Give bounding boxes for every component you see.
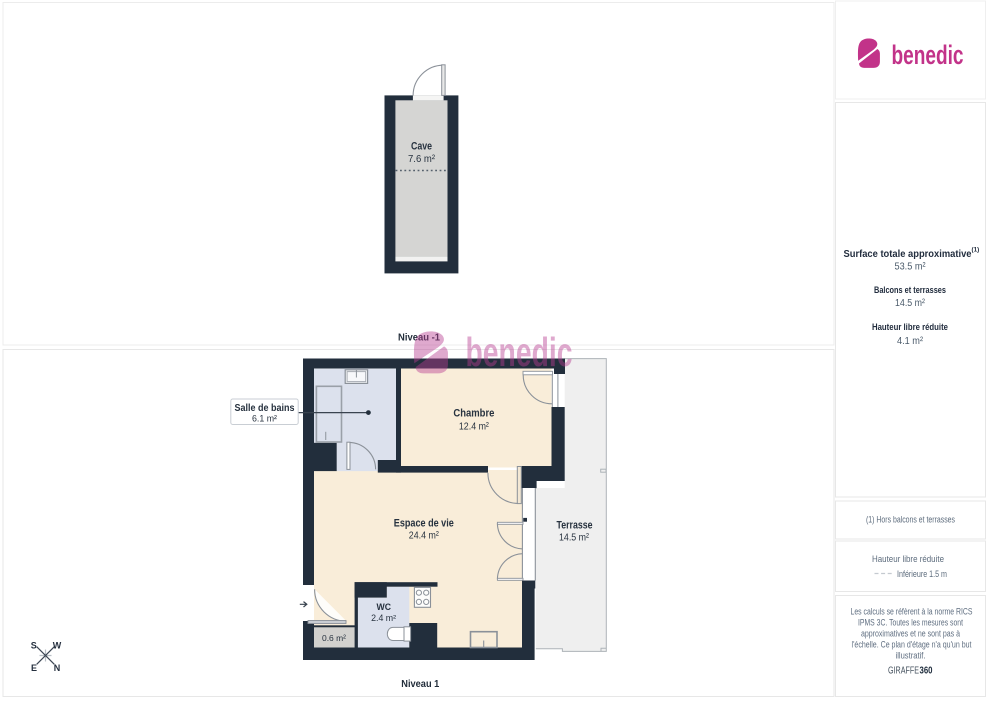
svg-text:benedic: benedic [466, 329, 573, 375]
svg-text:(1): (1) [972, 247, 980, 254]
svg-text:Cave: Cave [411, 141, 432, 153]
svg-text:Les calculs se réfèrent à la n: Les calculs se réfèrent à la norme RICS [851, 607, 973, 617]
svg-text:Espace de vie: Espace de vie [394, 517, 454, 529]
svg-text:14.5 m²: 14.5 m² [559, 532, 589, 544]
svg-text:12.4 m²: 12.4 m² [459, 421, 489, 433]
svg-text:illustratif.: illustratif. [896, 651, 926, 661]
svg-text:Salle de bains: Salle de bains [235, 403, 295, 414]
svg-text:Balcons et terrasses: Balcons et terrasses [874, 285, 946, 296]
svg-text:Surface totale approximative: Surface totale approximative [844, 248, 972, 260]
svg-text:Chambre: Chambre [453, 407, 494, 419]
svg-text:24.4 m²: 24.4 m² [409, 530, 439, 542]
svg-text:4.1 m²: 4.1 m² [897, 336, 924, 347]
svg-text:Inférieure 1.5 m: Inférieure 1.5 m [897, 569, 947, 579]
svg-text:benedic: benedic [892, 40, 964, 70]
svg-text:360: 360 [920, 665, 933, 677]
svg-text:Hauteur libre réduite: Hauteur libre réduite [872, 322, 948, 333]
svg-text:2.4 m²: 2.4 m² [371, 613, 396, 623]
svg-text:E: E [31, 663, 37, 673]
svg-text:W: W [53, 641, 62, 651]
svg-text:GIRAFFE: GIRAFFE [888, 665, 919, 677]
svg-text:14.5 m²: 14.5 m² [895, 298, 926, 309]
svg-text:0.6 m²: 0.6 m² [322, 633, 346, 643]
svg-text:IPMS 3C. Toutes les mesures so: IPMS 3C. Toutes les mesures sont [858, 618, 963, 628]
svg-text:S: S [31, 641, 37, 651]
svg-text:(1) Hors balcons et terrasses: (1) Hors balcons et terrasses [866, 515, 955, 525]
svg-text:7.6 m²: 7.6 m² [408, 153, 435, 165]
svg-text:53.5 m²: 53.5 m² [895, 261, 926, 273]
svg-text:Niveau 1: Niveau 1 [401, 679, 439, 690]
svg-text:l'échelle. Ce plan d'étage n'a: l'échelle. Ce plan d'étage n'a qu'un but [852, 640, 972, 650]
svg-text:Terrasse: Terrasse [557, 520, 593, 532]
svg-text:Hauteur libre réduite: Hauteur libre réduite [872, 554, 944, 564]
svg-text:N: N [54, 663, 61, 673]
svg-text:approximatives et ne sont pas: approximatives et ne sont pas à [861, 629, 960, 639]
svg-text:WC: WC [377, 602, 392, 612]
svg-text:6.1 m²: 6.1 m² [252, 413, 277, 424]
